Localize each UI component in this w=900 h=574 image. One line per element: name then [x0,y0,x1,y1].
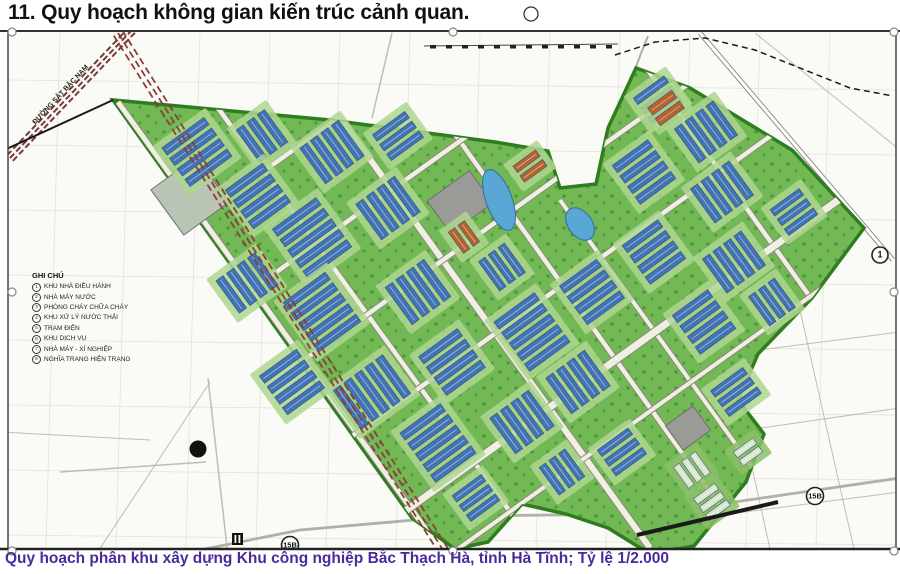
legend-item-number: 4 [32,314,41,323]
legend-item-label: KHU NHÀ ĐIỀU HÀNH [44,283,111,291]
railway-symbol-tick [606,45,612,49]
rotation-handle[interactable] [524,7,538,21]
legend-item-number: 8 [32,355,41,364]
legend-item-label: KHU DỊCH VỤ [44,335,86,343]
legend-item: 8NGHĨA TRANG HIỆN TRẠNG [32,355,150,364]
legend-item: 4KHU XỬ LÝ NƯỚC THẢI [32,314,150,323]
legend-item: 2NHÀ MÁY NƯỚC [32,293,150,302]
map-caption: Quy hoạch phân khu xây dựng Khu công ngh… [0,550,900,574]
road-sign-label: 1 [877,250,882,260]
legend-item: 6KHU DỊCH VỤ [32,335,150,344]
legend-item-label: TRẠM ĐIỆN [44,325,80,333]
legend-item-number: 7 [32,345,41,354]
road-sign-label: 15B [808,492,822,501]
selection-handle[interactable] [8,288,16,296]
legend-item-number: 3 [32,303,41,312]
road-sign: 15B [807,488,824,505]
map-legend: GHI CHÚ 1KHU NHÀ ĐIỀU HÀNH2NHÀ MÁY NƯỚC3… [32,272,150,366]
legend-item-number: 5 [32,324,41,333]
landmark-dot [190,441,207,458]
railway-symbol-tick [542,45,548,49]
legend-items: 1KHU NHÀ ĐIỀU HÀNH2NHÀ MÁY NƯỚC3PHÒNG CH… [32,283,150,365]
selection-handle[interactable] [8,28,16,36]
railway-symbol-tick [446,45,452,49]
railway-symbol-tick [430,45,436,49]
railway-symbol-tick [558,45,564,49]
railway-symbol-tick [574,45,580,49]
railway-symbol-tick [590,45,596,49]
road-sign: 1 [872,247,888,263]
railway-symbol-tick [478,45,484,49]
legend-item-label: PHÒNG CHÁY CHỮA CHÁY [44,304,128,312]
railway-symbol-tick [494,45,500,49]
legend-item: 7NHÀ MÁY - XÍ NGHIỆP [32,345,150,354]
selection-handle[interactable] [890,28,898,36]
selection-handle[interactable] [890,288,898,296]
railway-symbol-tick [510,45,516,49]
gate-icon-slit [235,535,237,543]
legend-item-label: KHU XỬ LÝ NƯỚC THẢI [44,314,118,322]
legend-item-number: 6 [32,335,41,344]
legend-item: 5TRẠM ĐIỆN [32,324,150,333]
legend-header: GHI CHÚ [32,272,150,280]
legend-item: 1KHU NHÀ ĐIỀU HÀNH [32,283,150,292]
legend-item-number: 2 [32,293,41,302]
railway-symbol-tick [462,45,468,49]
gate-icon [232,533,243,545]
legend-item-number: 1 [32,283,41,292]
legend-item-label: NGHĨA TRANG HIỆN TRẠNG [44,356,130,364]
selection-handle[interactable] [449,28,457,36]
legend-item: 3PHÒNG CHÁY CHỮA CHÁY [32,303,150,312]
railway-symbol-tick [526,45,532,49]
gate-icon-slit [239,535,241,543]
legend-item-label: NHÀ MÁY - XÍ NGHIỆP [44,346,112,354]
legend-item-label: NHÀ MÁY NƯỚC [44,294,96,302]
